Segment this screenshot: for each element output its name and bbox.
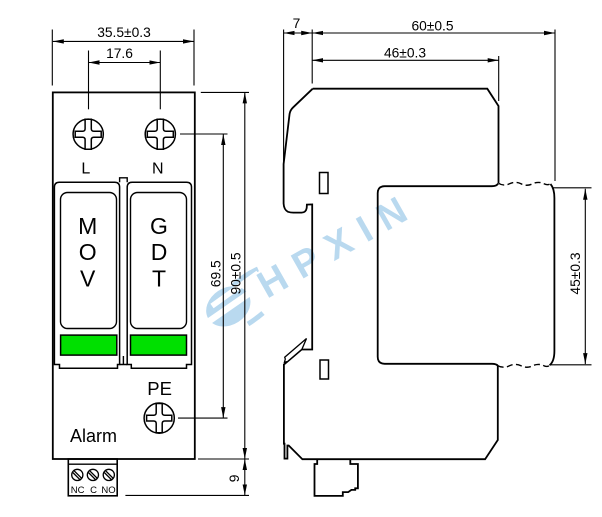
svg-text:69.5: 69.5 (208, 260, 223, 287)
svg-text:60±0.5: 60±0.5 (411, 18, 453, 33)
svg-text:17.6: 17.6 (106, 46, 133, 61)
svg-text:Alarm: Alarm (70, 426, 117, 446)
svg-text:D: D (151, 239, 168, 265)
svg-text:35.5±0.3: 35.5±0.3 (97, 25, 151, 40)
svg-text:45±0.3: 45±0.3 (568, 252, 583, 294)
svg-text:T: T (152, 266, 166, 292)
svg-text:C: C (90, 485, 97, 496)
svg-text:V: V (80, 266, 96, 292)
svg-text:PE: PE (147, 378, 172, 399)
svg-text:L: L (81, 161, 90, 178)
svg-text:HPXIN: HPXIN (251, 184, 425, 307)
svg-text:46±0.3: 46±0.3 (384, 46, 426, 61)
svg-text:N: N (152, 161, 164, 178)
svg-text:7: 7 (293, 16, 301, 31)
svg-text:G: G (150, 213, 168, 239)
svg-text:NO: NO (101, 485, 115, 496)
svg-text:9: 9 (227, 474, 242, 482)
svg-text:NC: NC (71, 485, 85, 496)
svg-text:O: O (79, 239, 97, 265)
svg-text:90±0.5: 90±0.5 (229, 252, 244, 294)
svg-text:M: M (78, 213, 97, 239)
